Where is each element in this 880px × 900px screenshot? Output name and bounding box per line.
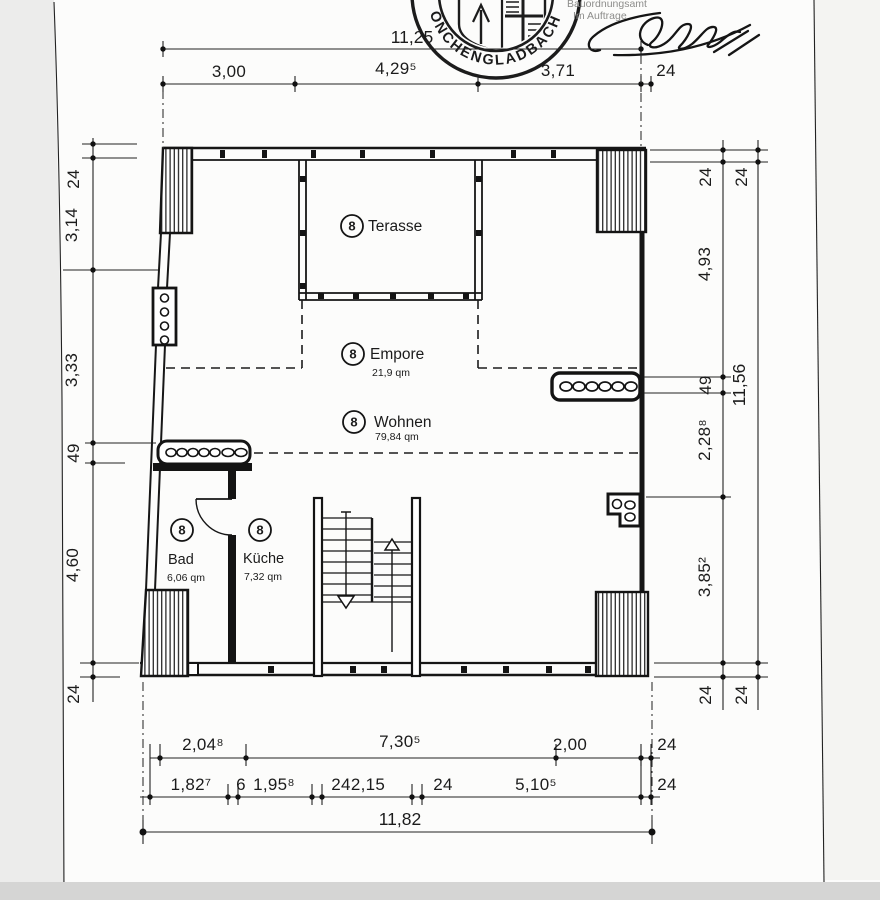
room-number: 8: [348, 219, 355, 234]
dim-right-inner-seg3: 49: [696, 375, 715, 395]
pier-top-right: [597, 150, 646, 232]
paper-background: [0, 0, 880, 900]
dim-bottom2-seg3: 1,95⁸: [253, 775, 295, 794]
page-margin-right: [814, 0, 880, 880]
room-area: 21,9 qm: [372, 367, 410, 379]
dim-bottom1-seg1: 2,04⁸: [182, 735, 224, 754]
dim-bottom2-seg1: 1,82⁷: [171, 775, 212, 794]
radiator-right: [552, 373, 640, 400]
page-margin-left: [0, 0, 64, 900]
room-number: 8: [350, 415, 357, 430]
room-area: 79,84 qm: [375, 431, 419, 443]
dim-right-outer-seg2: 11,56: [729, 364, 749, 407]
pier-bottom-right: [596, 592, 648, 676]
dim-right-inner-seg5: 3,85²: [695, 557, 714, 597]
dim-bottom2-seg5: 2,15: [351, 775, 385, 794]
dim-bottom-overall: 11,82: [379, 809, 422, 829]
office-subtitle-text: Im Auftrage: [573, 10, 627, 22]
room-name: Wohnen: [374, 414, 431, 431]
room-name: Küche: [243, 551, 284, 567]
dim-right-outer-seg1: 24: [732, 167, 751, 187]
dim-left-seg6: 24: [64, 684, 83, 704]
scan-edge-band: [0, 882, 880, 900]
dim-bottom2-seg4: 24: [331, 775, 351, 794]
dim-bottom2-seg6: 24: [433, 775, 453, 794]
dim-bottom2-seg7: 5,10⁵: [515, 775, 557, 794]
stair-wall-right: [412, 498, 420, 676]
dim-left-seg1: 24: [64, 169, 83, 189]
stair-wall-left: [314, 498, 322, 676]
dim-bottom2-seg8: 24: [657, 775, 677, 794]
room-name: Terasse: [368, 218, 422, 235]
room-name: Empore: [370, 346, 424, 363]
dim-top-seg1: 3,00: [212, 62, 246, 81]
bad-kueche-wall-upper: [228, 471, 236, 499]
room-area: 6,06 qm: [167, 572, 205, 584]
dim-bottom2-seg2: 6: [236, 775, 246, 794]
room-number: 8: [349, 347, 356, 362]
dim-bottom1-seg4: 24: [657, 735, 677, 754]
bad-kueche-wall-lower: [228, 535, 236, 663]
floor-plan-drawing: ÖNCHENGLADBACH Bauordnungsamt Im Auftrag…: [0, 0, 880, 900]
radiator-left: [158, 441, 250, 464]
dim-right-inner-seg2: 4,93: [695, 247, 714, 281]
room-area: 7,32 qm: [244, 571, 282, 583]
room-number: 8: [256, 523, 263, 538]
left-wall-window: [153, 288, 176, 345]
dim-right-outer-seg3: 24: [732, 685, 751, 705]
dim-top-seg4: 24: [656, 61, 676, 80]
room-name: Bad: [168, 552, 194, 568]
dim-top-seg2: 4,29⁵: [375, 59, 417, 78]
dim-top-seg3: 3,71: [541, 61, 575, 80]
room-number: 8: [178, 523, 185, 538]
dim-left-seg2: 3,14: [62, 208, 81, 242]
dim-right-inner-seg4: 2,28⁸: [695, 419, 714, 461]
dim-right-inner-seg1: 24: [696, 167, 715, 187]
pier-top-left: [160, 148, 192, 233]
pier-bottom-left: [141, 590, 188, 676]
dim-left-seg5: 4,60: [63, 548, 82, 582]
office-name-text: Bauordnungsamt: [567, 0, 647, 10]
dim-right-inner-seg6: 24: [696, 685, 715, 705]
dim-bottom1-seg2: 7,30⁵: [379, 732, 421, 751]
dim-left-seg3: 3,33: [62, 353, 81, 387]
scanned-floor-plan-page: ÖNCHENGLADBACH Bauordnungsamt Im Auftrag…: [0, 0, 880, 900]
dim-bottom1-seg3: 2,00: [553, 735, 587, 754]
dim-left-seg4: 49: [64, 443, 83, 463]
dim-top-overall: 11,25: [391, 27, 434, 47]
